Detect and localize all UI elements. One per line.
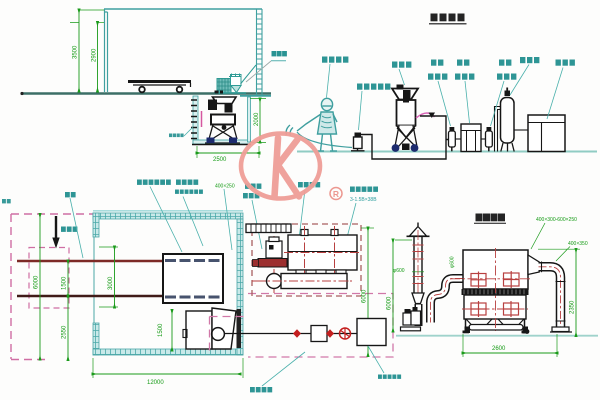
svg-text:1500: 1500 xyxy=(158,323,164,337)
svg-text:3500: 3500 xyxy=(73,45,79,59)
svg-text:12000: 12000 xyxy=(147,380,164,386)
svg-text:2350: 2350 xyxy=(570,300,576,314)
svg-text:2500: 2500 xyxy=(213,157,227,163)
svg-text:1500: 1500 xyxy=(62,276,68,290)
svg-text:6000: 6000 xyxy=(387,296,393,310)
svg-text:6000: 6000 xyxy=(34,275,40,289)
svg-text:2600: 2600 xyxy=(492,346,506,352)
svg-text:φ600: φ600 xyxy=(450,256,456,268)
svg-text:3000: 3000 xyxy=(108,276,114,290)
svg-text:400×300-600×250: 400×300-600×250 xyxy=(536,217,577,223)
svg-text:φ600: φ600 xyxy=(393,268,405,274)
svg-text:6000: 6000 xyxy=(362,289,368,303)
svg-text:3-1.5B×38B: 3-1.5B×38B xyxy=(350,197,377,203)
svg-text:R: R xyxy=(333,189,339,199)
svg-text:2900: 2900 xyxy=(92,48,98,62)
svg-text:400×250: 400×250 xyxy=(215,184,235,190)
svg-text:2000: 2000 xyxy=(254,112,260,126)
svg-text:400×350: 400×350 xyxy=(568,241,588,247)
svg-text:2550: 2550 xyxy=(62,325,68,339)
